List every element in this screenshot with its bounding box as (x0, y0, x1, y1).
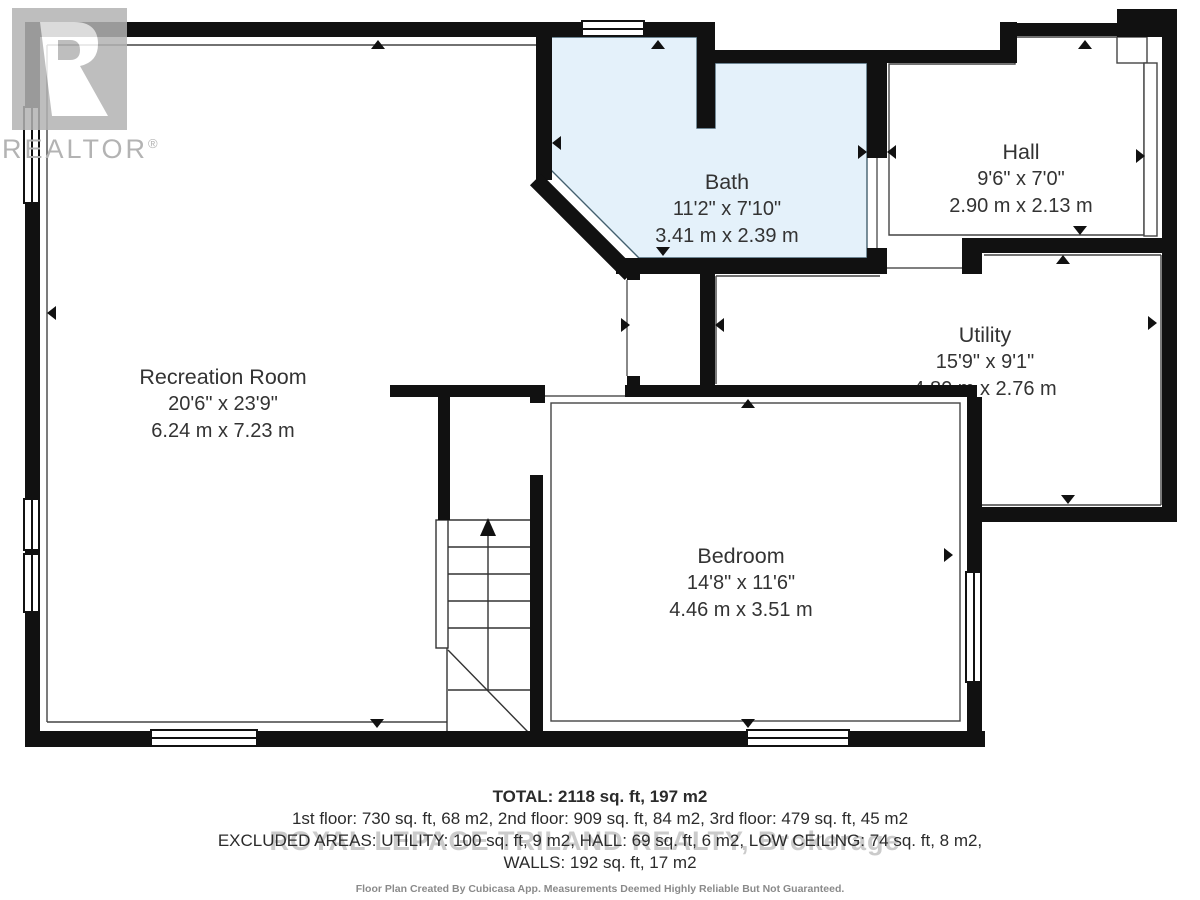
room-label-bath: Bath 11'2" x 7'10" 3.41 m x 2.39 m (655, 169, 798, 250)
wall-segment (530, 385, 545, 403)
room-name: Bedroom (669, 543, 812, 570)
disclaimer-text: Floor Plan Created By Cubicasa App. Meas… (0, 882, 1200, 896)
realtor-wordmark-text: REALTOR (2, 134, 148, 164)
opening-arrow (47, 306, 56, 320)
walls-area-text: WALLS: 192 sq. ft, 17 m2 (0, 852, 1200, 874)
opening-arrow (715, 318, 724, 332)
floorplan-lines (0, 0, 1200, 900)
room-dim-metric: 6.24 m x 7.23 m (139, 418, 306, 445)
room-dim-metric: 4.46 m x 3.51 m (669, 597, 812, 624)
floor-plan: Recreation Room 20'6" x 23'9" 6.24 m x 7… (0, 0, 1200, 900)
window (746, 729, 850, 747)
opening-arrow (741, 719, 755, 728)
excluded-areas-text: EXCLUDED AREAS: UTILITY: 100 sq. ft, 9 m… (0, 830, 1200, 852)
room-name: Utility (913, 322, 1056, 349)
wall-segment (627, 376, 640, 390)
wall-segment (530, 475, 543, 735)
wall-segment (967, 507, 1175, 522)
opening-arrow (1073, 226, 1087, 235)
room-name: Hall (949, 139, 1092, 166)
room-dim-imperial: 9'6" x 7'0" (949, 166, 1092, 193)
wall-segment (390, 385, 545, 397)
opening-arrow (651, 40, 665, 49)
hall-notch (1117, 37, 1147, 63)
room-dim-imperial: 20'6" x 23'9" (139, 391, 306, 418)
opening-arrow (621, 318, 630, 332)
room-label-hall: Hall 9'6" x 7'0" 2.90 m x 2.13 m (949, 139, 1092, 220)
realtor-block-r-icon (12, 8, 127, 130)
summary-footer: TOTAL: 2118 sq. ft, 197 m2 1st floor: 73… (0, 786, 1200, 896)
room-dim-imperial: 11'2" x 7'10" (655, 196, 798, 223)
total-area-text: TOTAL: 2118 sq. ft, 197 m2 (0, 786, 1200, 808)
opening-arrow (371, 40, 385, 49)
opening-arrow (1078, 40, 1092, 49)
registered-mark: ® (148, 136, 161, 151)
staircase (436, 518, 530, 732)
wall-segment (697, 22, 715, 128)
hall-duct (1144, 63, 1157, 236)
wall-segment (438, 394, 450, 520)
wall-segment (1008, 23, 1125, 36)
opening-arrow (944, 548, 953, 562)
window (23, 553, 40, 613)
room-label-recreation: Recreation Room 20'6" x 23'9" 6.24 m x 7… (139, 364, 306, 445)
room-dim-metric: 3.41 m x 2.39 m (655, 223, 798, 250)
opening-arrow (1056, 255, 1070, 264)
room-label-bedroom: Bedroom 14'8" x 11'6" 4.46 m x 3.51 m (669, 543, 812, 624)
opening-arrow (1136, 149, 1145, 163)
wall-segment (962, 253, 982, 274)
window (581, 20, 645, 37)
opening-arrow (741, 399, 755, 408)
wall-segment (536, 22, 552, 180)
wall-segment (1162, 9, 1177, 522)
wall-segment (715, 50, 1000, 63)
opening-arrow (887, 145, 896, 159)
room-name: Recreation Room (139, 364, 306, 391)
realtor-wordmark: REALTOR® (2, 134, 161, 165)
room-dim-imperial: 14'8" x 11'6" (669, 570, 812, 597)
window (150, 729, 258, 747)
wall-segment (867, 248, 887, 274)
room-dim-metric: 2.90 m x 2.13 m (949, 193, 1092, 220)
opening-arrow (370, 719, 384, 728)
realtor-logo (12, 8, 127, 130)
floor-areas-text: 1st floor: 730 sq. ft, 68 m2, 2nd floor:… (0, 808, 1200, 830)
wall-segment (627, 263, 640, 280)
window (23, 498, 40, 551)
room-name: Bath (655, 169, 798, 196)
wall-segment (867, 63, 887, 158)
window (965, 571, 982, 683)
opening-arrow (858, 145, 867, 159)
opening-arrow (656, 247, 670, 256)
opening-arrow (552, 136, 561, 150)
wall-segment (616, 258, 882, 274)
wall-segment (700, 274, 715, 397)
wall-segment (962, 238, 1177, 253)
room-dim-imperial: 15'9" x 9'1" (913, 349, 1056, 376)
opening-arrow (1061, 495, 1075, 504)
opening-arrow (1148, 316, 1157, 330)
wall-segment (625, 385, 977, 397)
